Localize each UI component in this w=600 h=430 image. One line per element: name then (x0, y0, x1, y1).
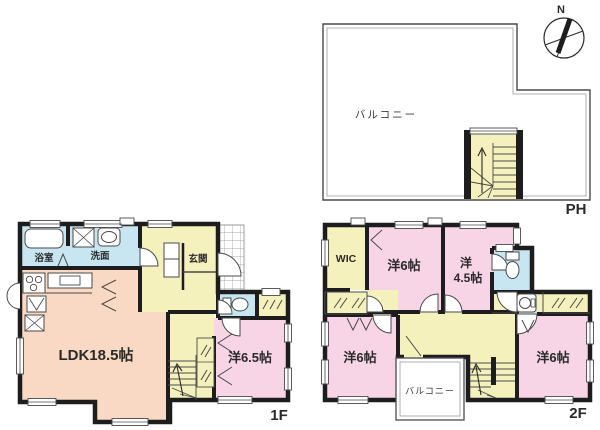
western65-label: 洋6.5帖 (228, 350, 272, 365)
western45-label-line1: 洋 (460, 255, 472, 270)
washer-icon (73, 228, 94, 247)
f2-balcony-label: バルコニー (405, 386, 455, 396)
western6-bl-label: 洋6帖 (343, 350, 376, 365)
floorplan-page: バルコニー PH (0, 0, 600, 430)
ph-balcony-label: バルコニー (355, 109, 417, 121)
closet-2f-right (543, 292, 590, 314)
washbasin-icon-1f (98, 228, 120, 246)
western45-label-line2: 4.5帖 (454, 270, 483, 285)
western6-br-label: 洋6帖 (536, 350, 569, 365)
compass-icon: N (544, 4, 584, 58)
ph-plan: バルコニー PH (323, 4, 590, 218)
toilet-icon-2f (506, 252, 519, 279)
refrigerator-space-icon (25, 315, 44, 331)
compass-north-label: N (557, 4, 565, 16)
ph-stairs-icon (464, 128, 523, 199)
entrance-cabinet (164, 243, 179, 277)
closet-1f-side (197, 338, 214, 387)
entrance-label: 玄関 (188, 253, 207, 265)
closet-2f-left (325, 292, 367, 314)
back-door-arc (7, 283, 20, 309)
bathtub-icon (25, 229, 63, 248)
f1-floor-label: 1F (270, 407, 288, 424)
hall-2f-center (398, 312, 532, 357)
ph-floor-label: PH (566, 201, 587, 218)
f2-balcony: バルコニー (396, 358, 464, 420)
f2-floor-label: 2F (569, 405, 587, 422)
kitchen-sink-icon (27, 296, 46, 312)
wash-label: 洗面 (90, 250, 110, 262)
f1-plan: 浴室 洗面 玄関 LDK18.5帖 洋6.5帖 1F (7, 218, 292, 426)
western6-tl-label: 洋6帖 (387, 258, 420, 273)
f2-plan: バルコニー WIC 洋6帖 洋 4.5帖 洋6帖 洋6帖 2F (322, 218, 594, 422)
wic-label: WIC (336, 253, 357, 265)
washbasin-icon-2f (517, 294, 536, 312)
stove-icon (23, 273, 45, 293)
floorplan-image: バルコニー PH (0, 0, 600, 430)
bath-label: 浴室 (34, 252, 54, 264)
ldk-label: LDK18.5帖 (58, 346, 133, 364)
